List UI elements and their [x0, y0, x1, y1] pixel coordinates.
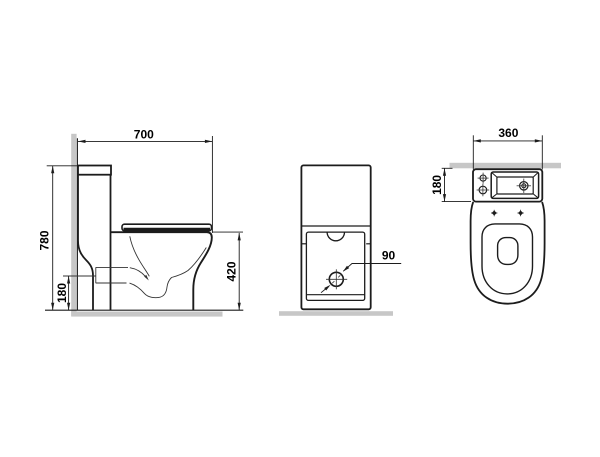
- svg-text:780: 780: [38, 230, 52, 250]
- svg-text:360: 360: [498, 126, 518, 140]
- svg-text:90: 90: [382, 249, 396, 263]
- svg-text:180: 180: [430, 175, 444, 195]
- svg-text:420: 420: [225, 261, 239, 281]
- svg-text:700: 700: [134, 128, 154, 142]
- svg-text:180: 180: [55, 283, 69, 303]
